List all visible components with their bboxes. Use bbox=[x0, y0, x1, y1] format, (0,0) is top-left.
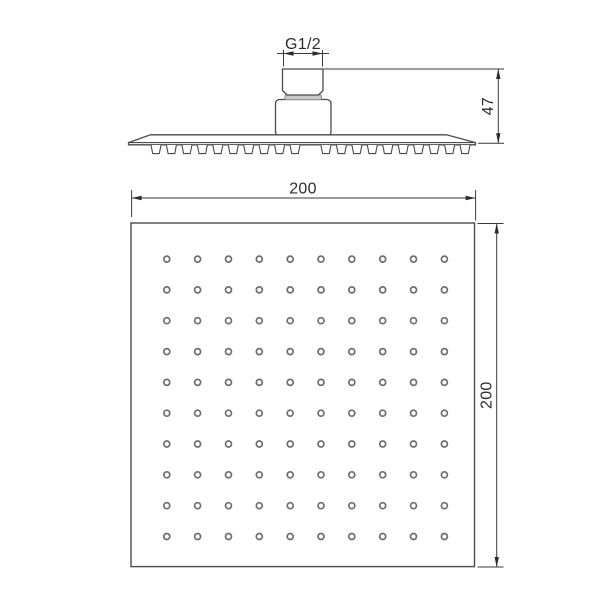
nozzle-hole bbox=[318, 503, 324, 509]
nozzle-hole bbox=[287, 410, 293, 416]
nozzle-hole bbox=[287, 349, 293, 355]
nozzle-hole bbox=[256, 472, 262, 478]
nozzle-hole bbox=[226, 379, 232, 385]
nozzle-profile bbox=[429, 145, 439, 154]
nozzle-hole bbox=[195, 287, 201, 293]
nozzle-hole bbox=[226, 534, 232, 540]
nozzle-profile bbox=[383, 145, 393, 154]
nozzle-hole bbox=[318, 534, 324, 540]
nozzle-hole bbox=[287, 318, 293, 324]
mounting-base bbox=[276, 100, 332, 137]
nozzle-hole bbox=[411, 256, 417, 262]
nozzle-hole bbox=[226, 256, 232, 262]
nozzle-profile bbox=[151, 145, 161, 154]
nozzle-hole bbox=[318, 318, 324, 324]
nozzle-profile bbox=[367, 145, 377, 154]
nozzle-hole bbox=[441, 503, 447, 509]
nozzle-profile bbox=[213, 145, 223, 154]
nozzle-hole bbox=[380, 441, 386, 447]
nozzle-hole bbox=[380, 287, 386, 293]
nozzle-hole bbox=[411, 534, 417, 540]
dim-head-height: 47 bbox=[324, 69, 504, 143]
nozzle-hole bbox=[380, 256, 386, 262]
nozzle-hole bbox=[441, 441, 447, 447]
nozzle-hole bbox=[195, 410, 201, 416]
nozzle-profile bbox=[352, 145, 362, 154]
dim-thread-size: G1/2 bbox=[277, 36, 329, 67]
nozzle-row-profile bbox=[151, 145, 470, 154]
nozzle-hole bbox=[318, 472, 324, 478]
nozzle-hole bbox=[411, 472, 417, 478]
nozzle-hole bbox=[287, 503, 293, 509]
nozzle-profile bbox=[414, 145, 424, 154]
nozzle-hole bbox=[380, 379, 386, 385]
nozzle-hole bbox=[256, 534, 262, 540]
nozzle-hole bbox=[318, 287, 324, 293]
nozzle-hole bbox=[195, 472, 201, 478]
nozzle-hole bbox=[441, 410, 447, 416]
nozzle-profile bbox=[290, 145, 300, 154]
nozzle-hole bbox=[164, 441, 170, 447]
nozzle-hole bbox=[256, 256, 262, 262]
nozzle-hole bbox=[287, 379, 293, 385]
nozzle-hole bbox=[441, 349, 447, 355]
nozzle-hole bbox=[164, 318, 170, 324]
width-value-label: 200 bbox=[289, 181, 317, 198]
nozzle-hole bbox=[411, 379, 417, 385]
nozzle-hole bbox=[226, 410, 232, 416]
nozzle-hole bbox=[380, 410, 386, 416]
technical-drawing-canvas: G1/2 47 bbox=[0, 0, 612, 612]
depth-value-label: 200 bbox=[479, 381, 496, 409]
nozzle-profile bbox=[445, 145, 455, 154]
nozzle-hole bbox=[287, 534, 293, 540]
nozzle-hole bbox=[256, 441, 262, 447]
thread-fitting bbox=[283, 69, 324, 95]
nozzle-hole bbox=[256, 410, 262, 416]
nozzle-profile bbox=[398, 145, 408, 154]
nozzle-hole bbox=[411, 349, 417, 355]
nozzle-hole bbox=[287, 256, 293, 262]
nozzle-hole bbox=[164, 287, 170, 293]
nozzle-hole bbox=[318, 410, 324, 416]
nozzle-hole bbox=[349, 534, 355, 540]
nozzle-hole bbox=[411, 410, 417, 416]
nozzle-hole bbox=[349, 410, 355, 416]
nozzle-hole bbox=[411, 503, 417, 509]
nozzle-hole bbox=[195, 318, 201, 324]
nozzle-hole bbox=[195, 379, 201, 385]
nozzle-hole bbox=[441, 287, 447, 293]
nozzle-hole bbox=[349, 379, 355, 385]
nozzle-hole bbox=[164, 410, 170, 416]
nozzle-hole bbox=[380, 349, 386, 355]
nozzle-hole bbox=[164, 256, 170, 262]
nozzle-hole bbox=[349, 503, 355, 509]
nozzle-hole bbox=[256, 318, 262, 324]
thread-size-label: G1/2 bbox=[285, 36, 321, 53]
nozzle-hole bbox=[349, 256, 355, 262]
nozzle-hole bbox=[195, 349, 201, 355]
nozzle-profile bbox=[244, 145, 254, 154]
nozzle-hole bbox=[226, 503, 232, 509]
nozzle-hole bbox=[411, 287, 417, 293]
nozzle-hole bbox=[164, 503, 170, 509]
nozzle-hole bbox=[256, 503, 262, 509]
height-value-label: 47 bbox=[480, 97, 497, 115]
nozzle-hole bbox=[195, 503, 201, 509]
nozzle-hole bbox=[287, 287, 293, 293]
nozzle-hole bbox=[164, 379, 170, 385]
nozzle-profile bbox=[460, 145, 470, 154]
nozzle-hole bbox=[226, 318, 232, 324]
nozzle-hole bbox=[318, 349, 324, 355]
nozzle-profile bbox=[166, 145, 176, 154]
nozzle-profile bbox=[336, 145, 346, 154]
faceplate-face bbox=[131, 223, 475, 567]
shower-head-drawing: G1/2 47 bbox=[0, 0, 612, 612]
nozzle-hole bbox=[380, 472, 386, 478]
nozzle-hole bbox=[256, 287, 262, 293]
nozzle-hole bbox=[195, 256, 201, 262]
nozzle-profile bbox=[197, 145, 207, 154]
nozzle-hole bbox=[164, 349, 170, 355]
nozzle-hole bbox=[256, 349, 262, 355]
nozzle-hole bbox=[164, 472, 170, 478]
nozzle-hole bbox=[349, 472, 355, 478]
dim-face-height: 200 bbox=[478, 224, 504, 568]
bottom-view: 200 200 bbox=[131, 181, 504, 568]
nozzle-hole bbox=[411, 441, 417, 447]
nozzle-hole bbox=[226, 287, 232, 293]
nozzle-hole bbox=[226, 349, 232, 355]
nozzle-hole bbox=[287, 441, 293, 447]
nozzle-hole bbox=[195, 534, 201, 540]
nozzle-hole bbox=[380, 503, 386, 509]
nozzle-hole bbox=[349, 441, 355, 447]
nozzle-profile bbox=[259, 145, 269, 154]
nozzle-hole bbox=[226, 441, 232, 447]
nozzle-hole bbox=[287, 472, 293, 478]
nozzle-hole bbox=[349, 349, 355, 355]
nozzle-profile bbox=[275, 145, 285, 154]
dim-face-width: 200 bbox=[132, 181, 476, 221]
nozzle-hole bbox=[318, 441, 324, 447]
nozzle-hole bbox=[441, 472, 447, 478]
nozzle-hole bbox=[164, 534, 170, 540]
nozzle-hole bbox=[195, 441, 201, 447]
nozzle-hole bbox=[318, 379, 324, 385]
nozzle-hole bbox=[380, 318, 386, 324]
nozzle-hole bbox=[226, 472, 232, 478]
nozzle-hole bbox=[349, 287, 355, 293]
nozzle-hole bbox=[411, 318, 417, 324]
nozzle-profile bbox=[228, 145, 238, 154]
nozzle-hole bbox=[318, 256, 324, 262]
nozzle-profile bbox=[321, 145, 331, 154]
nozzle-hole bbox=[441, 318, 447, 324]
faceplate-profile bbox=[129, 135, 476, 145]
nozzle-hole bbox=[441, 534, 447, 540]
nozzle-hole bbox=[441, 379, 447, 385]
nozzle-hole bbox=[441, 256, 447, 262]
nozzle-hole bbox=[256, 379, 262, 385]
nozzle-profile bbox=[182, 145, 192, 154]
side-view: G1/2 47 bbox=[129, 36, 505, 154]
nozzle-hole bbox=[349, 318, 355, 324]
nozzle-hole bbox=[380, 534, 386, 540]
